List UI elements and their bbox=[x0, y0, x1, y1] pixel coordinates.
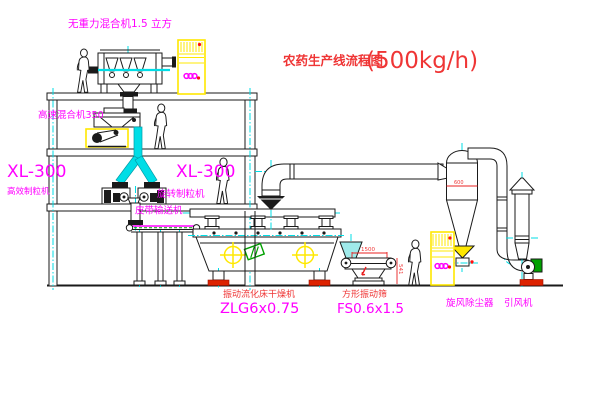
label-cyclone: 旋风除尘器 bbox=[446, 297, 494, 309]
y-feed-pipe bbox=[112, 156, 160, 188]
dryer-feed-duct bbox=[255, 160, 448, 230]
worker-second-floor bbox=[154, 104, 166, 149]
worker-ground bbox=[408, 240, 420, 285]
cyclone-dim-text: 600 bbox=[454, 180, 464, 186]
label-screen-name: 方形振动筛 bbox=[342, 288, 387, 300]
screen-height-dim: 541 bbox=[397, 264, 403, 275]
label-granulator-left-name: 高效制粒机 bbox=[7, 186, 50, 197]
process-flow-drawing: 600 bbox=[0, 0, 600, 403]
label-dryer-name: 振动流化床干燥机 bbox=[223, 288, 295, 300]
label-dryer-model: ZLG6x0.75 bbox=[220, 301, 299, 317]
label-granulator-left-model: XL-300 bbox=[7, 162, 66, 182]
gravity-free-mixer bbox=[88, 46, 176, 114]
label-top-mixer: 无重力混合机1.5 立方 bbox=[68, 17, 172, 30]
control-cabinet-upper bbox=[178, 40, 205, 94]
label-high-speed-mixer: 高速混合机350 bbox=[38, 109, 104, 121]
screen-width-dim: 1500 bbox=[361, 247, 375, 253]
control-cabinet-lower bbox=[431, 232, 454, 285]
label-belt-conveyor: 皮带输送机 bbox=[135, 205, 183, 217]
diagram-canvas: 600 bbox=[0, 0, 600, 403]
diagram-title-capacity: (500kg/h) bbox=[366, 48, 478, 74]
label-granulator-mid-name: 旋转制粒机 bbox=[157, 188, 205, 200]
label-screen-model: FS0.6x1.5 bbox=[337, 301, 404, 317]
induced-draft-fan bbox=[520, 259, 543, 286]
belt-conveyor bbox=[126, 225, 199, 287]
fluid-bed-dryer bbox=[183, 209, 362, 288]
label-granulator-mid-model: XL-300 bbox=[176, 162, 235, 182]
label-fan: 引风机 bbox=[504, 297, 533, 309]
worker-top-floor bbox=[77, 49, 89, 92]
